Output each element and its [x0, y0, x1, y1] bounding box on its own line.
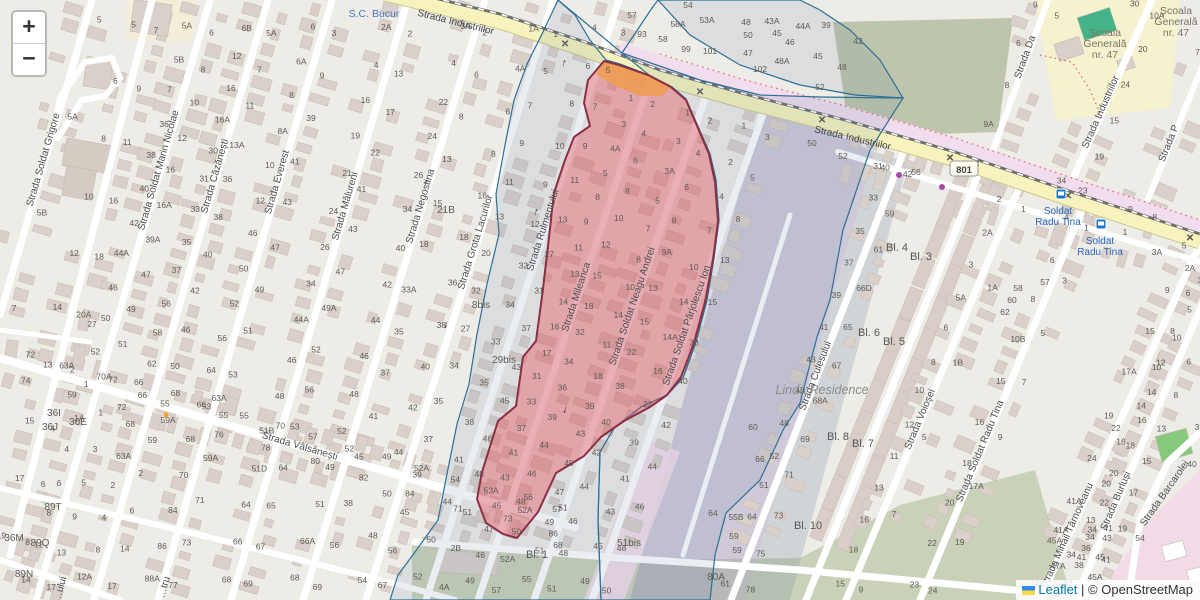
house-number: 64 [708, 508, 718, 518]
house-number: 12 [69, 248, 79, 258]
house-number: 16 [859, 514, 869, 524]
house-number: 15 [1142, 456, 1152, 466]
house-number: 59A [161, 415, 176, 425]
house-number: 15 [640, 317, 650, 327]
map-label: Bl. 6 [858, 327, 880, 339]
house-number: 50 [512, 527, 522, 537]
house-number: 86 [157, 541, 167, 551]
house-number: 9 [1128, 204, 1133, 214]
attribution-bar: Leaflet | © OpenStreetMap [1016, 580, 1200, 600]
house-number: 10 [689, 262, 699, 272]
map-label: 36J [42, 422, 58, 433]
house-number: 45 [492, 500, 502, 510]
house-number: 6 [1016, 38, 1021, 48]
house-number: 35 [394, 327, 404, 337]
house-number: 50 [807, 138, 817, 148]
house-number: 51 [547, 584, 557, 594]
house-number: 24 [1087, 453, 1097, 463]
house-number: 38 [214, 212, 224, 222]
house-number: 78 [746, 584, 756, 594]
house-number: 42 [853, 36, 863, 46]
house-number: 10 [915, 385, 925, 395]
house-number: 1A [528, 23, 539, 33]
house-number: 18 [94, 252, 104, 262]
house-number: 36 [448, 277, 458, 287]
house-number: 47 [270, 242, 280, 252]
house-number: 51 [463, 507, 473, 517]
house-number: 5 [1187, 304, 1192, 314]
openstreetmap-link[interactable]: © OpenStreetMap [1088, 582, 1193, 597]
house-number: 46 [635, 502, 645, 512]
house-number: 41 [1103, 523, 1113, 533]
house-number: 39 [821, 20, 831, 30]
map-label: Bl. 10 [794, 520, 822, 532]
house-number: 11 [123, 137, 132, 147]
house-number: 18 [1126, 441, 1136, 451]
map-label: 29bis [492, 355, 516, 366]
house-number: 16 [653, 366, 663, 376]
house-number: 12A [77, 572, 92, 582]
house-number: 14 [679, 296, 689, 306]
map-label: Bl. 4 [886, 242, 908, 254]
house-number: 13 [43, 360, 53, 370]
house-number: 67 [832, 360, 842, 370]
house-number: 7 [707, 226, 712, 236]
house-number: 18 [419, 239, 429, 249]
house-number: 59A [203, 453, 218, 463]
house-number: 3 [765, 132, 770, 142]
house-number: 6 [41, 479, 46, 489]
house-number: 16 [1137, 415, 1147, 425]
house-number: 4 [696, 148, 701, 158]
house-number: 46 [527, 468, 537, 478]
house-number: 52 [345, 443, 355, 453]
house-number: 52 [311, 344, 321, 354]
house-number: 13 [720, 255, 730, 265]
amenity-dot-orange [164, 413, 169, 418]
house-number: 45 [813, 51, 823, 61]
house-number: 8 [201, 64, 206, 74]
house-number: 55 [522, 574, 532, 584]
house-number: 52A [414, 463, 429, 473]
house-number: 66 [755, 454, 765, 464]
house-number: 10B [1010, 334, 1025, 344]
house-number: 41 [454, 455, 464, 465]
house-number: 39 [306, 113, 316, 123]
house-number: 17 [385, 107, 395, 117]
house-number: 49 [465, 576, 475, 586]
house-number: 41 [290, 156, 300, 166]
house-number: 67 [256, 542, 266, 552]
school-name-label: nr. 47 [1092, 49, 1118, 61]
house-number: 13 [1157, 423, 1167, 433]
house-number: 5B [174, 55, 185, 65]
house-number: 35 [434, 396, 444, 406]
house-number: 62 [1000, 307, 1010, 317]
house-number: 49 [545, 517, 555, 527]
house-number: 46 [568, 516, 578, 526]
house-number: 76 [214, 430, 224, 440]
house-number: 34 [1066, 550, 1076, 560]
house-number: 1 [685, 108, 690, 118]
house-number: 22 [370, 147, 380, 157]
house-number: 68 [126, 419, 136, 429]
house-number: 13 [874, 483, 884, 493]
house-number: 65 [843, 322, 853, 332]
house-number: 59 [729, 531, 739, 541]
house-number: 46 [483, 434, 493, 444]
house-number: 45A [1047, 536, 1062, 546]
house-number: 11 [570, 175, 579, 185]
house-number: 52A [517, 505, 532, 515]
house-number: 9A [662, 247, 673, 257]
house-number: 34 [505, 300, 515, 310]
house-number: 72 [117, 402, 127, 412]
house-number: 68A [813, 396, 828, 406]
house-number: 9 [998, 432, 1003, 442]
map-viewport[interactable]: ✕✕✕✕✕✕Strada Soldat Grigore55A5B75681012… [0, 0, 1200, 600]
house-number: 8 [459, 112, 464, 122]
house-number: 2A [381, 22, 392, 32]
house-number: 33A [401, 284, 416, 294]
level-crossing-icon: ✕ [1186, 233, 1194, 244]
house-number: 6 [57, 478, 62, 488]
house-number: 45 [593, 541, 603, 551]
house-number: 41A [1053, 525, 1068, 535]
house-number: 20 [1109, 468, 1119, 478]
house-number: 68 [290, 572, 300, 582]
house-number: 4 [102, 512, 107, 522]
house-number: 27 [545, 249, 555, 259]
house-number: 58 [153, 328, 163, 338]
house-number: 48 [475, 469, 485, 479]
house-number: 3A [664, 166, 675, 176]
house-number: 59 [67, 389, 77, 399]
house-number: 73 [503, 514, 513, 524]
house-number: 8 [25, 537, 30, 547]
house-number: 34 [403, 204, 413, 214]
house-number: 44 [443, 497, 453, 507]
house-number: 63A [116, 451, 131, 461]
house-number: 5 [603, 168, 608, 178]
house-number: 57 [308, 431, 318, 441]
bus-stop-label: Radu Tina [1077, 247, 1123, 258]
map-label: 8bis [472, 300, 490, 311]
house-number: 8 [636, 255, 641, 265]
house-number: 47 [555, 487, 565, 497]
house-number: 8 [625, 186, 630, 196]
map-label: S.C. Bucur [349, 8, 400, 20]
house-number: 5A [956, 293, 967, 303]
house-number: 9 [584, 217, 589, 227]
house-number: 4 [374, 60, 379, 70]
house-number: 7 [1022, 377, 1027, 387]
house-number: 2 [707, 116, 712, 126]
house-number: 57 [552, 504, 562, 514]
house-number: 46 [108, 283, 118, 293]
house-number: 5 [750, 173, 755, 183]
house-number: 7 [1195, 47, 1200, 57]
house-number: 37 [172, 265, 182, 275]
house-number: 56 [911, 167, 921, 177]
house-number: 6 [113, 76, 118, 86]
house-number: 44A [114, 248, 129, 258]
zoom-control: + − [11, 10, 47, 77]
house-number: 50 [101, 313, 111, 323]
house-number: 53A [699, 15, 714, 25]
house-number: 8 [289, 90, 294, 100]
house-number: 16 [1116, 437, 1126, 447]
house-number: 43 [806, 355, 816, 365]
house-number: 22 [1111, 423, 1121, 433]
house-number: 42 [190, 285, 200, 295]
house-number: 48 [349, 389, 359, 399]
map-label: 89T [44, 502, 61, 513]
house-number: 15 [592, 271, 602, 281]
house-number: 43 [1102, 533, 1112, 543]
house-number: 40 [421, 361, 431, 371]
house-number: 50 [426, 535, 436, 545]
house-number: 39 [547, 412, 557, 422]
house-number: 12 [1156, 357, 1166, 367]
house-number: 5A [182, 21, 193, 31]
house-number: 9 [1165, 285, 1170, 295]
house-number: 8 [931, 357, 936, 367]
map-label: 80A [707, 572, 725, 583]
house-number: 6B [242, 23, 253, 33]
house-number: 2A [1185, 263, 1196, 273]
house-number: 45 [400, 507, 410, 517]
house-number: 17 [15, 473, 25, 483]
house-number: 66 [138, 390, 148, 400]
house-number: 23 [1078, 185, 1088, 195]
house-number: 3 [1195, 422, 1200, 432]
house-number: 52 [815, 82, 825, 92]
house-number: 17 [542, 348, 552, 358]
house-number: 5 [606, 65, 611, 75]
house-number: 6 [633, 155, 638, 165]
house-number: 18 [459, 232, 469, 242]
house-number: 34 [1057, 175, 1067, 185]
house-number: 40 [601, 417, 611, 427]
house-number: 6 [209, 27, 214, 37]
house-number: 9 [543, 180, 548, 190]
house-number: 57 [627, 10, 637, 20]
house-number: 9 [1033, 0, 1038, 10]
house-number: 19 [955, 537, 965, 547]
house-number: 8 [569, 98, 574, 108]
house-number: 35 [182, 237, 192, 247]
house-number: 49 [382, 451, 392, 461]
house-number: 31 [534, 286, 544, 296]
house-number: 56 [161, 299, 171, 309]
house-number: 12 [256, 195, 266, 205]
house-number: 43 [500, 473, 510, 483]
house-number: 3 [93, 444, 98, 454]
house-number: 6 [311, 22, 316, 32]
map-label: 36M [4, 533, 23, 544]
house-number: 2 [997, 194, 1002, 204]
house-number: 12 [530, 219, 540, 229]
house-number: 5 [1054, 10, 1059, 20]
house-number: 8 [101, 134, 106, 144]
house-number: 1 [629, 93, 634, 103]
house-number: 11 [245, 100, 254, 110]
house-number: 3 [332, 28, 337, 38]
house-number: 54 [358, 575, 368, 585]
house-number: 47 [141, 269, 151, 279]
house-number: 5B [37, 207, 48, 217]
map-label: Bl. 5 [883, 336, 905, 348]
house-number: 78 [261, 442, 271, 452]
house-number: 64 [241, 499, 251, 509]
house-number: 52 [91, 346, 101, 356]
house-number: 42 [408, 403, 418, 413]
house-number: 5A [266, 28, 277, 38]
house-number: 16 [109, 195, 119, 205]
house-number: 10 [626, 282, 636, 292]
house-number: 47 [336, 267, 346, 277]
house-number: 19 [1095, 152, 1105, 162]
house-number: 45 [772, 28, 782, 38]
house-number: 46 [287, 355, 297, 365]
house-number: 6 [1050, 255, 1055, 265]
house-number: 22 [643, 399, 653, 409]
house-number: 51 [315, 499, 325, 509]
map-label: 36E [69, 417, 87, 428]
house-number: 8 [491, 149, 496, 159]
house-number: 49 [255, 284, 265, 294]
house-number: 44 [371, 315, 381, 325]
house-number: 14 [120, 543, 130, 553]
house-number: 69 [800, 434, 810, 444]
house-number: 2B [451, 543, 462, 553]
house-number: 6 [1186, 288, 1191, 298]
house-number: 6 [474, 69, 479, 79]
house-number: 3A [1152, 247, 1163, 257]
house-number: 8 [672, 216, 677, 226]
house-number: 2 [650, 99, 655, 109]
house-number: 16 [975, 417, 985, 427]
house-number: 6 [130, 506, 135, 516]
house-number: 4 [641, 128, 646, 138]
house-number: 50 [239, 263, 249, 273]
map-label: Bl. 3 [910, 251, 932, 263]
zoom-in-button[interactable]: + [13, 12, 45, 44]
house-number: 70A [96, 372, 111, 382]
house-number: 32 [575, 327, 585, 337]
leaflet-link[interactable]: Leaflet [1038, 582, 1077, 597]
house-number: 39 [629, 438, 639, 448]
house-number: 45 [500, 395, 510, 405]
house-number: 55 [160, 398, 170, 408]
house-number: 31 [532, 371, 542, 381]
house-number: 9 [72, 511, 77, 521]
house-number: 54 [1135, 533, 1145, 543]
house-number: 40 [203, 249, 213, 259]
house-number: 11 [574, 243, 583, 253]
map-label: 21B [437, 205, 455, 216]
house-number: 35 [855, 226, 865, 236]
map-label: Bl. 8 [827, 431, 849, 443]
house-number: 48 [741, 17, 751, 27]
house-number: 3 [621, 28, 626, 38]
house-number: 11 [505, 177, 514, 187]
house-number: 38 [465, 417, 475, 427]
house-number: 35 [479, 377, 489, 387]
bus-stop-label: Soldat [1044, 206, 1073, 217]
house-number: 12 [232, 51, 242, 61]
house-number: 6A [296, 56, 307, 66]
house-number: 36 [1081, 543, 1091, 553]
house-number: 11 [890, 451, 899, 461]
house-number: 46 [785, 37, 795, 47]
house-number: 48 [275, 391, 285, 401]
house-number: 61 [874, 245, 884, 255]
house-number: 71 [784, 470, 794, 480]
house-number: 68 [171, 388, 181, 398]
house-number: 36 [159, 119, 169, 129]
house-number: 64 [278, 462, 288, 472]
house-number: 52 [770, 451, 780, 461]
house-number: 17A [969, 481, 984, 491]
house-number: 63A [211, 393, 226, 403]
house-number: 8 [595, 192, 600, 202]
house-number: 43A [764, 16, 779, 26]
house-number: 1A [987, 283, 998, 293]
zoom-out-button[interactable]: − [13, 44, 45, 75]
house-number: 63A [59, 361, 74, 371]
house-number: 7 [154, 25, 159, 35]
house-number: 30 [1130, 0, 1140, 9]
house-number: 44 [539, 440, 549, 450]
attribution-separator: | [1077, 582, 1088, 597]
house-number: 68 [222, 575, 232, 585]
house-number: 11 [602, 339, 611, 349]
house-number: 3 [676, 136, 681, 146]
house-number: 21 [342, 168, 352, 178]
house-number: 37 [517, 423, 527, 433]
house-number: 6 [505, 107, 510, 117]
house-number: 6 [1186, 357, 1191, 367]
house-number: 73 [774, 511, 784, 521]
house-number: 3 [1062, 275, 1067, 285]
house-number: 37 [844, 257, 854, 267]
house-number: 41 [620, 474, 630, 484]
house-number: 53 [228, 369, 238, 379]
house-number: 33 [868, 192, 878, 202]
house-number: 13A [229, 140, 244, 150]
house-number: 8 [1174, 390, 1179, 400]
house-number: 41 [369, 411, 379, 421]
house-number: 71 [195, 495, 205, 505]
house-number: 15 [25, 416, 35, 426]
house-number: 55 [239, 411, 249, 421]
house-number: 102 [753, 64, 767, 74]
house-number: 70 [276, 421, 286, 431]
house-number: 20 [945, 497, 955, 507]
house-number: 54 [683, 0, 693, 10]
house-number: 44A [294, 314, 309, 324]
map-canvas[interactable]: ✕✕✕✕✕✕Strada Soldat Grigore55A5B75681012… [0, 0, 1200, 600]
map-label: 89N [15, 569, 33, 580]
house-number: 53 [290, 422, 300, 432]
house-number: 84 [168, 505, 178, 515]
house-number: 10 [190, 97, 200, 107]
house-number: 57 [1040, 277, 1050, 287]
house-number: 40 [396, 243, 406, 253]
house-number: 6 [684, 182, 689, 192]
